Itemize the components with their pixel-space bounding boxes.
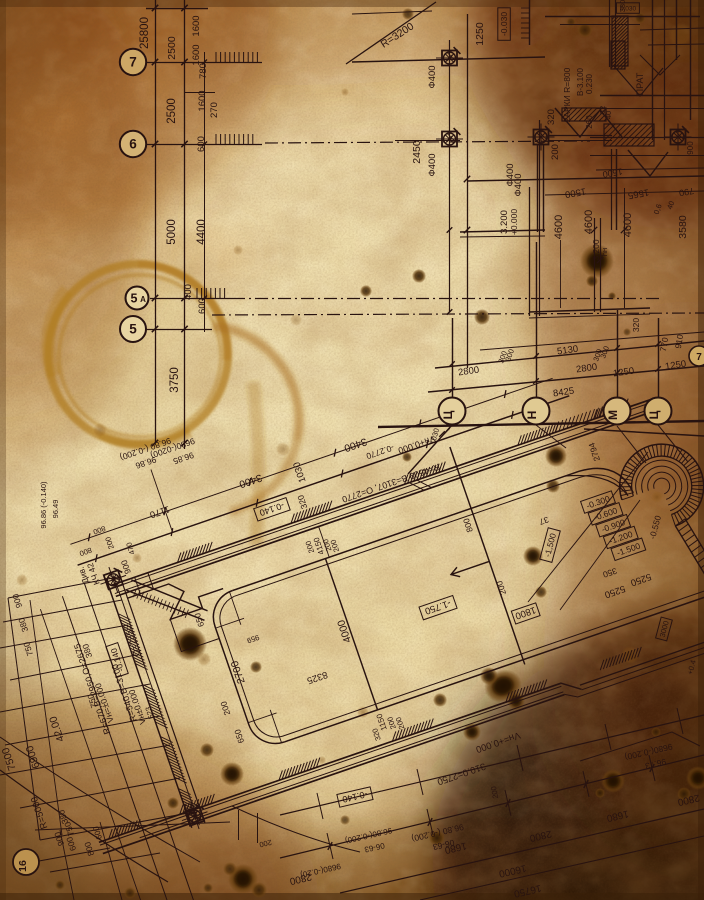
svg-text:96.49: 96.49: [51, 500, 60, 519]
svg-text:6: 6: [129, 137, 137, 152]
svg-text:Ф400: Ф400: [427, 65, 438, 88]
svg-text:780: 780: [198, 63, 209, 79]
svg-text:3580: 3580: [677, 215, 689, 239]
svg-text:270: 270: [209, 102, 220, 118]
svg-text:7: 7: [696, 352, 702, 363]
svg-text:260: 260: [585, 115, 594, 129]
svg-text:4600: 4600: [622, 213, 634, 237]
svg-text:4400: 4400: [196, 219, 208, 245]
svg-text:ПРАТ: ПРАТ: [635, 72, 645, 95]
svg-text:3750: 3750: [169, 367, 181, 393]
svg-text:4600: 4600: [553, 215, 565, 239]
svg-text:600: 600: [197, 298, 208, 314]
svg-text:+0.000: +0.000: [509, 209, 519, 236]
svg-text:Н: Н: [525, 411, 539, 420]
svg-text:900: 900: [686, 141, 695, 155]
svg-text:200: 200: [550, 144, 561, 160]
svg-text:320: 320: [631, 318, 641, 332]
svg-text:5000: 5000: [166, 219, 178, 245]
svg-text:1250: 1250: [474, 22, 486, 46]
svg-text:М: М: [606, 410, 620, 420]
svg-text:16: 16: [17, 860, 29, 872]
svg-text:0.030: 0.030: [620, 5, 637, 12]
svg-text:A: A: [140, 295, 146, 304]
svg-text:Ц: Ц: [647, 410, 661, 419]
svg-text:320: 320: [546, 109, 557, 125]
svg-text:-0.030: -0.030: [499, 12, 509, 36]
svg-text:В-3.100: В-3.100: [576, 67, 585, 96]
svg-text:5: 5: [129, 322, 137, 337]
svg-text:96.86 (-0.140): 96.86 (-0.140): [39, 481, 48, 529]
svg-text:40: 40: [604, 111, 613, 119]
svg-text:Ф400: Ф400: [505, 163, 516, 186]
svg-text:1600: 1600: [197, 90, 208, 111]
svg-text:2АРКИ R=800: 2АРКИ R=800: [562, 67, 572, 122]
svg-text:2500: 2500: [166, 98, 178, 124]
svg-text:hн: hн: [600, 248, 609, 256]
svg-text:2450: 2450: [411, 140, 423, 164]
svg-text:25800: 25800: [139, 17, 151, 49]
svg-text:Ц: Ц: [441, 410, 455, 419]
svg-text:400: 400: [183, 284, 194, 300]
svg-text:0.230: 0.230: [585, 73, 594, 94]
svg-text:2500: 2500: [166, 36, 178, 60]
svg-text:7: 7: [129, 55, 137, 70]
svg-text:1600: 1600: [191, 44, 202, 65]
svg-text:Ф400: Ф400: [427, 153, 438, 176]
svg-text:1600: 1600: [191, 15, 202, 36]
svg-text:5: 5: [131, 292, 138, 306]
svg-text:600: 600: [196, 136, 207, 152]
